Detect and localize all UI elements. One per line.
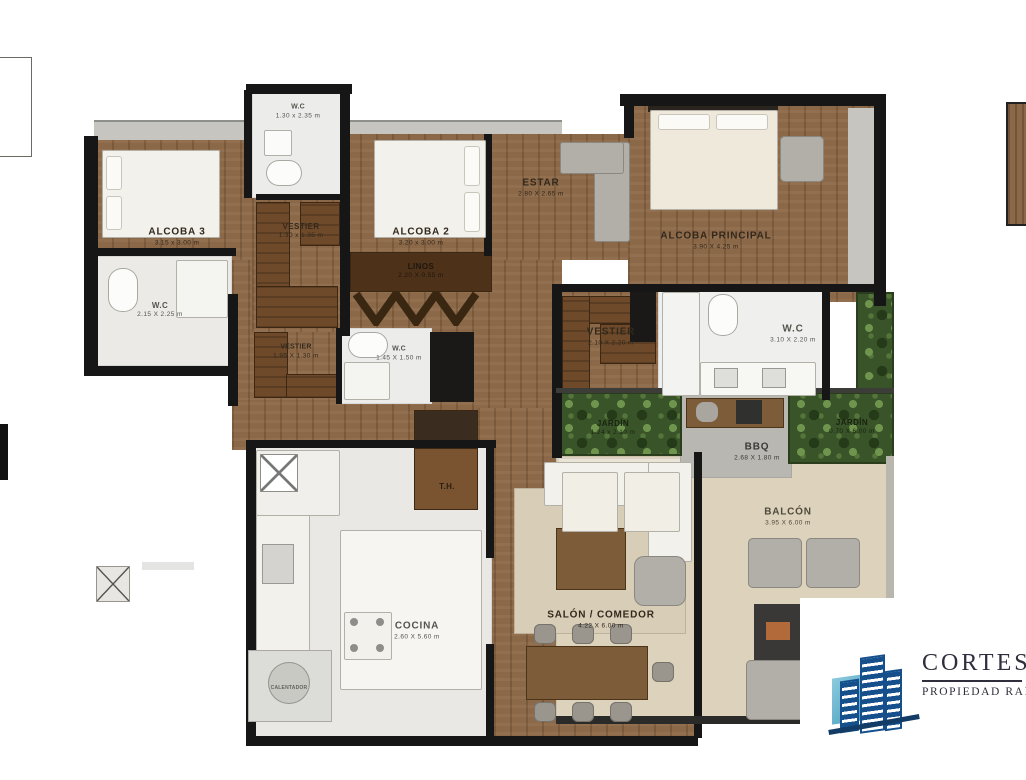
room-dims: 2.60 X 5.60 m	[394, 633, 440, 641]
room-name: BBQ	[745, 442, 770, 453]
room-name: W.C	[782, 324, 803, 335]
vestier-centro-closet-bottom	[286, 374, 338, 398]
room-dims: 2.10 X 2.20 m	[587, 339, 635, 347]
label-wc-principal: W.C3.10 X 2.20 m	[770, 324, 816, 345]
room-dims: 2.15 X 2.25 m	[137, 311, 183, 319]
room-dims: 0.70 X 6.00 m	[829, 428, 875, 436]
wall	[256, 194, 344, 200]
lounge-chair	[624, 472, 680, 532]
room-dims: 3.90 X 4.25 m	[660, 243, 771, 251]
room-dims: 1.24 x 2.10 m	[591, 429, 636, 437]
salon-armchair	[634, 556, 686, 606]
label-jardin-left: JARDÍN1.24 x 2.10 m	[591, 419, 636, 437]
room-dims: 1.30 x 2.35 m	[276, 112, 321, 120]
room-name: W.C	[152, 301, 168, 310]
wall	[228, 294, 238, 406]
vestier-principal-closet-left	[562, 296, 590, 392]
label-vestier-principal: VESTIER2.10 X 2.20 m	[587, 327, 635, 348]
vestier-a3-closet-left	[256, 202, 290, 294]
page-fragment-crossed-box	[96, 566, 130, 602]
balcon-armchair	[748, 538, 802, 588]
vestier-a3-closet-bottom	[256, 286, 338, 328]
room-name: W.C	[392, 346, 406, 353]
logo-tagline: PROPIEDAD RAÍZ	[922, 686, 1022, 698]
label-wc-left: W.C2.15 X 2.25 m	[137, 301, 183, 319]
room-name: VESTIER	[587, 327, 635, 338]
label-salon-comedor: SALÓN / COMEDOR4.22 X 6.00 m	[547, 610, 655, 631]
side-planter	[856, 292, 894, 394]
logo-cortes: CORTES PROPIEDAD RAÍZ	[800, 598, 1026, 780]
wall	[486, 448, 494, 558]
dining-chair	[610, 702, 632, 722]
shower	[662, 292, 700, 396]
calentador-tank	[268, 662, 310, 704]
room-dims: 3.10 X 2.20 m	[770, 336, 816, 344]
wall	[624, 94, 634, 138]
room-dims: 3.20 x 3.00 m	[392, 239, 449, 247]
label-linos: LINOS2.20 X 0.55 m	[398, 262, 444, 280]
stove-burner	[376, 644, 384, 652]
room-name: ALCOBA 2	[392, 227, 449, 238]
kitchen-island	[340, 530, 482, 690]
shower	[344, 362, 390, 400]
label-vestier-alcoba3: VESTIER1.30 x 1.35 m	[279, 222, 324, 240]
room-dims: 3.15 x 3.00 m	[148, 239, 205, 247]
alcoba2-pillow	[464, 192, 480, 232]
wall	[552, 284, 562, 458]
room-name: VESTIER	[282, 222, 319, 231]
label-th: T.H.	[439, 482, 455, 492]
principal-armchair	[780, 136, 824, 182]
wall	[694, 452, 702, 738]
wall	[874, 94, 886, 306]
room-name: ALCOBA PRINCIPAL	[660, 231, 771, 242]
wall	[84, 366, 238, 376]
room-dims: 2.68 X 1.80 m	[734, 454, 780, 462]
room-name: SALÓN / COMEDOR	[547, 610, 655, 621]
washer	[260, 454, 298, 492]
dining-chair	[534, 702, 556, 722]
label-alcoba-principal: ALCOBA PRINCIPAL3.90 X 4.25 m	[660, 231, 771, 252]
dining-chair	[572, 702, 594, 722]
linos-hangers	[352, 292, 490, 326]
alcoba2-pillow	[464, 146, 480, 186]
wall	[246, 440, 496, 448]
shower	[176, 260, 228, 318]
label-bbq: BBQ2.68 X 1.80 m	[734, 442, 780, 463]
label-wc-top: W.C1.30 x 2.35 m	[276, 104, 321, 121]
room-name: ESTAR	[522, 178, 559, 189]
floorplan-canvas: W.C1.30 x 2.35 m ALCOBA 33.15 x 3.00 m V…	[0, 0, 1026, 780]
wardrobe-block-1	[430, 332, 474, 402]
wall	[246, 736, 698, 746]
room-dims: 1.30 x 1.35 m	[279, 232, 324, 240]
room-dims: 1.95 X 1.30 m	[273, 352, 319, 360]
logo-name: CORTES	[922, 650, 1022, 677]
room-dims: 2.80 X 2.65 m	[518, 190, 564, 198]
label-estar: ESTAR2.80 X 2.65 m	[518, 178, 564, 199]
principal-pillow	[716, 114, 768, 130]
room-name: JARDÍN	[597, 419, 629, 428]
th-closet	[414, 448, 478, 510]
room-dims: 4.22 X 6.00 m	[547, 622, 655, 630]
label-vestier-centro: VESTIER1.95 X 1.30 m	[273, 344, 319, 361]
toilet	[708, 294, 738, 336]
room-name: T.H.	[439, 482, 455, 491]
page-fragment-rect	[0, 57, 32, 157]
principal-pillow	[658, 114, 710, 130]
room-name: CALENTADOR	[271, 685, 308, 691]
bbq-grill	[736, 400, 762, 424]
wall	[822, 288, 830, 400]
label-jardin-right: JARDÍN0.70 X 6.00 m	[829, 418, 875, 436]
logo-rule	[922, 680, 1022, 682]
alcoba3-pillow	[106, 156, 122, 190]
room-name: COCINA	[395, 621, 439, 632]
room-dims: 3.95 X 6.00 m	[764, 519, 812, 527]
label-alcoba2: ALCOBA 23.20 x 3.00 m	[392, 227, 449, 248]
balcon-armchair	[806, 538, 860, 588]
wall	[246, 84, 352, 94]
estar-sofa-chaise	[560, 142, 624, 174]
wall	[552, 284, 886, 292]
room-dims: 1.45 X 1.50 m	[376, 354, 422, 362]
page-fragment-bar	[0, 424, 8, 480]
page-fragment-line	[142, 562, 194, 570]
sink	[714, 368, 738, 388]
sink	[762, 368, 786, 388]
lounge-chair	[562, 472, 618, 532]
dining-chair	[652, 662, 674, 682]
toilet	[108, 268, 138, 312]
vestier-centro-closet-left	[254, 332, 288, 398]
room-name: ALCOBA 3	[148, 227, 205, 238]
sink	[264, 130, 292, 156]
wall-gray-principal	[848, 108, 876, 288]
room-dims: 2.20 X 0.55 m	[398, 272, 444, 280]
stove-burner	[376, 618, 384, 626]
toilet	[266, 160, 302, 186]
label-calentador: CALENTADOR	[271, 685, 308, 691]
kitchen-sink	[262, 544, 294, 584]
bbq-sink	[696, 402, 718, 422]
room-name: LINOS	[408, 262, 434, 271]
room-name: BALCÓN	[764, 507, 812, 518]
balcon-fireplace-fire	[766, 622, 790, 640]
dining-table	[526, 646, 648, 700]
stove-burner	[350, 644, 358, 652]
wall	[336, 328, 342, 404]
page-fragment-wood-strip	[1006, 102, 1026, 226]
wall	[96, 248, 236, 256]
label-balcon: BALCÓN3.95 X 6.00 m	[764, 507, 812, 528]
alcoba3-pillow	[106, 196, 122, 230]
label-wc-centro: W.C1.45 X 1.50 m	[376, 346, 422, 363]
wall	[620, 94, 886, 106]
wall	[486, 644, 494, 744]
buildings-icon	[830, 644, 918, 730]
wall	[244, 90, 252, 198]
wall	[340, 90, 350, 336]
stove-burner	[350, 618, 358, 626]
label-alcoba3: ALCOBA 33.15 x 3.00 m	[148, 227, 205, 248]
room-name: JARDÍN	[836, 418, 868, 427]
salon-coffee-table	[556, 528, 626, 590]
room-name: VESTIER	[280, 344, 311, 351]
label-cocina: COCINA2.60 X 5.60 m	[394, 621, 440, 642]
logo-text: CORTES PROPIEDAD RAÍZ	[922, 650, 1022, 698]
room-name: W.C	[291, 104, 305, 111]
